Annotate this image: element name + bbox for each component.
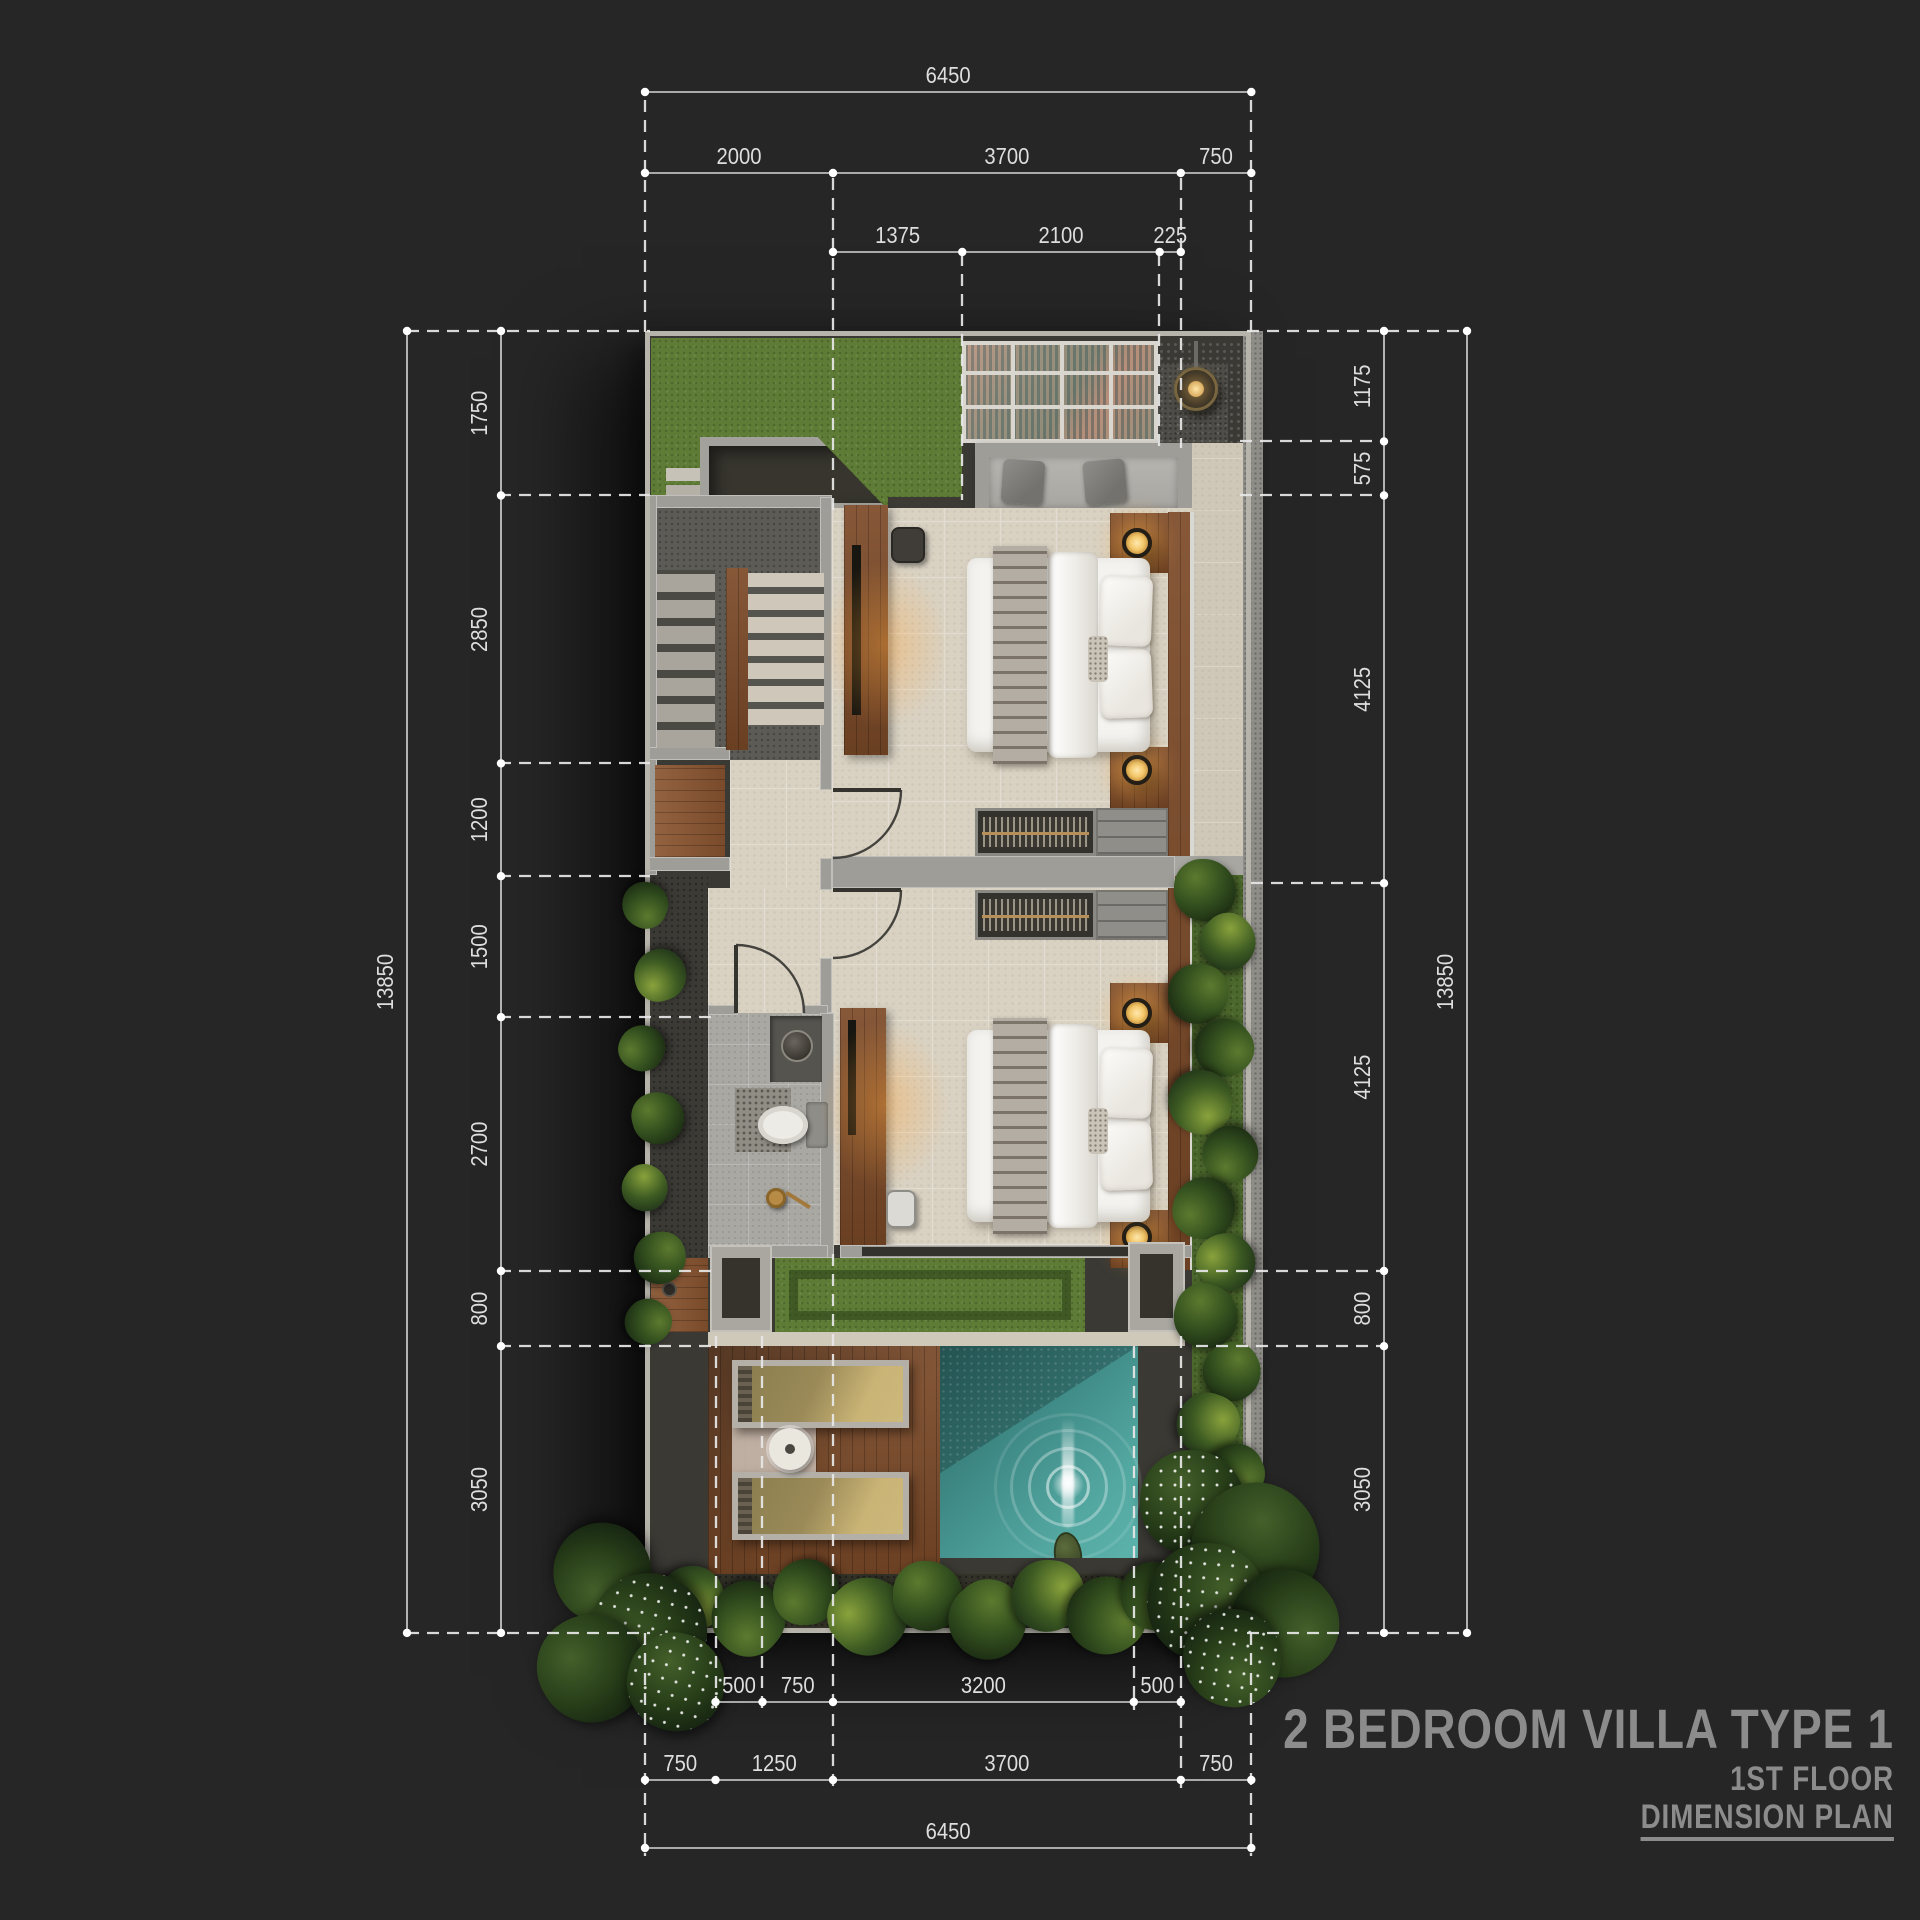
dim-tick — [1247, 88, 1255, 96]
dim-label: 4125 — [1349, 1055, 1376, 1100]
dim-tick — [1380, 1629, 1388, 1637]
dim-label: 2850 — [466, 607, 493, 652]
dim-label: 6450 — [926, 1818, 971, 1845]
page-title: 2 BEDROOM VILLA TYPE 1 — [1283, 1700, 1894, 1758]
dim-tick — [1380, 437, 1388, 445]
dim-label: 225 — [1153, 222, 1187, 249]
dim-label: 575 — [1349, 452, 1376, 486]
dim-label: 1200 — [466, 797, 493, 842]
dim-label: 13850 — [372, 954, 399, 1010]
dim-tick — [497, 872, 505, 880]
dim-label: 1500 — [466, 924, 493, 969]
dim-label: 1250 — [752, 1750, 797, 1777]
dim-tick — [1177, 248, 1185, 256]
dim-tick — [1380, 327, 1388, 335]
dim-label: 3700 — [984, 143, 1029, 170]
dim-tick — [1380, 1267, 1388, 1275]
title-block: 2 BEDROOM VILLA TYPE 1 1ST FLOOR DIMENSI… — [1149, 1700, 1894, 1841]
dim-tick — [1247, 1844, 1255, 1852]
floor-plan-canvas: 6450200037007501375210022550075032005007… — [0, 0, 1920, 1920]
dim-tick — [1463, 1629, 1471, 1637]
dim-tick — [641, 88, 649, 96]
dim-tick — [497, 327, 505, 335]
dim-label: 3050 — [466, 1467, 493, 1512]
dim-label: 750 — [663, 1750, 697, 1777]
dim-label: 4125 — [1349, 667, 1376, 712]
dim-tick — [1155, 248, 1163, 256]
dim-label: 6450 — [926, 62, 971, 89]
dim-tick — [641, 169, 649, 177]
dim-label: 13850 — [1432, 954, 1459, 1010]
door-swing-arc — [736, 945, 804, 1013]
dim-label: 3700 — [984, 1750, 1029, 1777]
dim-label: 2000 — [716, 143, 761, 170]
dim-label: 3200 — [961, 1672, 1006, 1699]
dim-label: 750 — [1199, 143, 1233, 170]
dim-label: 2100 — [1038, 222, 1083, 249]
dim-tick — [711, 1776, 719, 1784]
dim-tick — [958, 248, 966, 256]
dim-tick — [497, 1013, 505, 1021]
dim-tick — [829, 248, 837, 256]
door-swing-arc — [833, 890, 901, 958]
dim-tick — [641, 1844, 649, 1852]
dim-tick — [758, 1698, 766, 1706]
dim-tick — [1177, 169, 1185, 177]
dim-tick — [497, 759, 505, 767]
dim-label: 2700 — [466, 1122, 493, 1167]
dim-label: 1750 — [466, 391, 493, 436]
dim-tick — [403, 327, 411, 335]
dim-tick — [497, 1342, 505, 1350]
dimension-layer: 6450200037007501375210022550075032005007… — [0, 0, 1920, 1920]
dim-tick — [829, 169, 837, 177]
dim-label: 750 — [781, 1672, 815, 1699]
dim-tick — [641, 1776, 649, 1784]
dim-tick — [829, 1776, 837, 1784]
dim-tick — [497, 1629, 505, 1637]
dim-tick — [829, 1698, 837, 1706]
dim-tick — [1380, 1342, 1388, 1350]
dim-tick — [711, 1698, 719, 1706]
dim-label: 500 — [722, 1672, 756, 1699]
sheet-label: DIMENSION PLAN — [1641, 1800, 1894, 1841]
dim-tick — [1247, 169, 1255, 177]
dim-label: 3050 — [1349, 1467, 1376, 1512]
dim-tick — [1380, 879, 1388, 887]
dim-tick — [403, 1629, 411, 1637]
dim-tick — [1130, 1698, 1138, 1706]
dim-tick — [497, 1267, 505, 1275]
door-swing-arc — [833, 790, 901, 858]
dim-label: 500 — [1140, 1672, 1174, 1699]
dim-label: 1375 — [875, 222, 920, 249]
dim-label: 1175 — [1349, 364, 1376, 408]
dim-label: 800 — [466, 1292, 493, 1326]
dim-tick — [497, 491, 505, 499]
dim-tick — [1463, 327, 1471, 335]
dim-label: 800 — [1349, 1292, 1376, 1326]
dim-tick — [1380, 491, 1388, 499]
floor-label: 1ST FLOOR — [1283, 1762, 1894, 1797]
